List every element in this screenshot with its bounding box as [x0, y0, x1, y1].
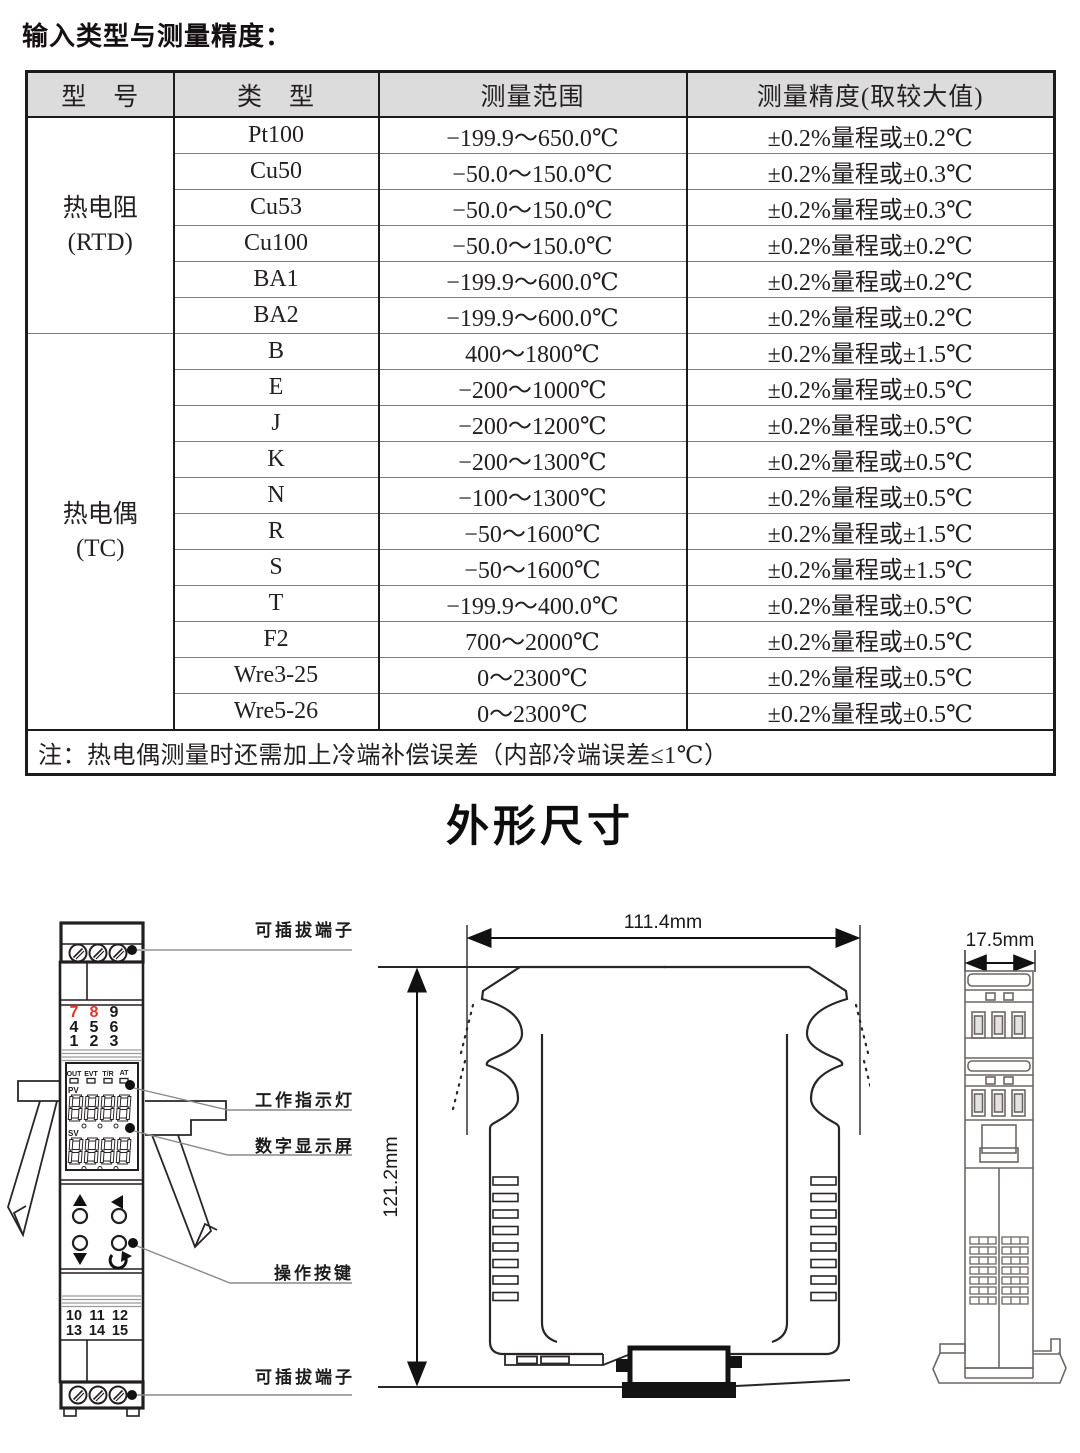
- cell-type: Cu100: [174, 226, 379, 262]
- terminal-numbers-top: 7 8 9 4 5 6 1 2 3: [70, 1004, 119, 1050]
- left-button: [112, 1209, 126, 1223]
- terminal-numbers-bottom: 10 11 12 13 14 15: [66, 1308, 128, 1339]
- cell-type: BA2: [174, 298, 379, 334]
- terminal-screw: [90, 1387, 107, 1404]
- sv-label: SV: [68, 1129, 79, 1138]
- svg-text:13: 13: [66, 1323, 82, 1339]
- rear-body: [965, 971, 1033, 1378]
- height-dimension: 121.2mm: [378, 967, 520, 1384]
- cell-range: −199.9～600.0℃: [379, 298, 687, 334]
- cell-range: 0～2300℃: [379, 658, 687, 694]
- table-row: Cu100−50.0～150.0℃±0.2%量程或±0.2℃: [27, 226, 1055, 262]
- cell-accuracy: ±0.2%量程或±0.5℃: [687, 442, 1055, 478]
- cell-range: −50.0～150.0℃: [379, 190, 687, 226]
- cell-type: R: [174, 514, 379, 550]
- terminal-screw: [90, 945, 107, 962]
- up-arrow-icon: [73, 1194, 87, 1206]
- cell-accuracy: ±0.2%量程或±0.5℃: [687, 478, 1055, 514]
- datasheet-page: 输入类型与测量精度： 型 号 类 型 测量范围 测量精度(取较大值) 热电阻 (…: [0, 0, 1080, 1453]
- width-dimension-label: 111.4mm: [624, 911, 702, 933]
- svg-text:AT: AT: [120, 1070, 130, 1077]
- profile-right-half: [664, 967, 870, 1354]
- cell-range: −50～1600℃: [379, 550, 687, 586]
- cell-range: −50.0～150.0℃: [379, 154, 687, 190]
- cell-type: F2: [174, 622, 379, 658]
- group-rtd-abbr: (RTD): [68, 229, 133, 256]
- svg-text:12: 12: [112, 1308, 128, 1324]
- cell-range: −50.0～150.0℃: [379, 226, 687, 262]
- cell-type: J: [174, 406, 379, 442]
- table-row: Wre5-260～2300℃±0.2%量程或±0.5℃: [27, 694, 1055, 731]
- cell-range: −200～1300℃: [379, 442, 687, 478]
- table-row: F2700～2000℃±0.2%量程或±0.5℃: [27, 622, 1055, 658]
- cell-accuracy: ±0.2%量程或±0.2℃: [687, 117, 1055, 154]
- cell-accuracy: ±0.2%量程或±0.5℃: [687, 586, 1055, 622]
- cell-range: −199.9～400.0℃: [379, 586, 687, 622]
- pv-display: [68, 1095, 131, 1128]
- table-header-row: 型 号 类 型 测量范围 测量精度(取较大值): [27, 72, 1055, 118]
- cell-range: −50～1600℃: [379, 514, 687, 550]
- cell-accuracy: ±0.2%量程或±0.5℃: [687, 658, 1055, 694]
- col-header-type: 类 型: [174, 72, 379, 118]
- cell-type: Cu53: [174, 190, 379, 226]
- down-arrow-icon: [73, 1253, 87, 1265]
- cell-type: N: [174, 478, 379, 514]
- leader-lines: [125, 945, 352, 1400]
- cell-accuracy: ±0.2%量程或±0.2℃: [687, 298, 1055, 334]
- baseline: [378, 1380, 850, 1387]
- table-note-row: 注：热电偶测量时还需加上冷端补偿误差（内部冷端误差≤1℃）: [27, 730, 1055, 775]
- pv-label: PV: [68, 1086, 79, 1095]
- cell-accuracy: ±0.2%量程或±0.2℃: [687, 226, 1055, 262]
- table-row: E−200～1000℃±0.2%量程或±0.5℃: [27, 370, 1055, 406]
- sv-display: [68, 1138, 131, 1171]
- cell-accuracy: ±0.2%量程或±0.5℃: [687, 406, 1055, 442]
- col-header-range: 测量范围: [379, 72, 687, 118]
- bottom-connector-strip: [505, 1354, 628, 1365]
- cell-range: 700～2000℃: [379, 622, 687, 658]
- label-operation-buttons: 操作按键: [274, 1259, 354, 1284]
- cell-type: Cu50: [174, 154, 379, 190]
- cell-type: K: [174, 442, 379, 478]
- section-title: 外形尺寸: [0, 792, 1080, 854]
- down-button: [73, 1236, 87, 1250]
- cell-type: T: [174, 586, 379, 622]
- svg-text:14: 14: [89, 1323, 105, 1339]
- terminal-screw: [110, 945, 127, 962]
- table-row: 热电阻 (RTD) Pt100 −199.9～650.0℃ ±0.2%量程或±0…: [27, 117, 1055, 154]
- cell-accuracy: ±0.2%量程或±0.5℃: [687, 370, 1055, 406]
- label-pluggable-terminal-top: 可插拔端子: [255, 916, 355, 941]
- cell-range: −199.9～650.0℃: [379, 117, 687, 154]
- cell-accuracy: ±0.2%量程或±0.3℃: [687, 190, 1055, 226]
- height-dimension-label: 121.2mm: [380, 1136, 402, 1217]
- cell-type: Pt100: [174, 117, 379, 154]
- cell-accuracy: ±0.2%量程或±1.5℃: [687, 334, 1055, 370]
- cell-accuracy: ±0.2%量程或±1.5℃: [687, 550, 1055, 586]
- table-row: J−200～1200℃±0.2%量程或±0.5℃: [27, 406, 1055, 442]
- cell-accuracy: ±0.2%量程或±0.5℃: [687, 622, 1055, 658]
- group-tc-cell: 热电偶 (TC): [27, 334, 174, 731]
- cell-range: −100～1300℃: [379, 478, 687, 514]
- table-row: T−199.9～400.0℃±0.2%量程或±0.5℃: [27, 586, 1055, 622]
- status-indicator-labels: OUT EVT T/R AT: [67, 1070, 130, 1078]
- cell-range: 400～1800℃: [379, 334, 687, 370]
- label-pluggable-terminal-bottom: 可插拔端子: [255, 1363, 355, 1388]
- cell-type: S: [174, 550, 379, 586]
- svg-text:10: 10: [66, 1308, 82, 1324]
- svg-text:OUT: OUT: [67, 1071, 83, 1078]
- terminal-screw: [70, 1387, 87, 1404]
- spec-table: 型 号 类 型 测量范围 测量精度(取较大值) 热电阻 (RTD) Pt100 …: [25, 70, 1056, 776]
- page-title: 输入类型与测量精度：: [22, 16, 292, 53]
- cell-range: −200～1200℃: [379, 406, 687, 442]
- depth-dimension: 17.5mm: [965, 930, 1035, 972]
- table-note: 注：热电偶测量时还需加上冷端补偿误差（内部冷端误差≤1℃）: [27, 730, 1055, 775]
- svg-text:11: 11: [89, 1308, 104, 1324]
- table-row: Cu53−50.0～150.0℃±0.2%量程或±0.3℃: [27, 190, 1055, 226]
- up-button: [73, 1209, 87, 1223]
- cell-range: 0～2300℃: [379, 694, 687, 731]
- table-row: Wre3-250～2300℃±0.2%量程或±0.5℃: [27, 658, 1055, 694]
- cell-range: −199.9～600.0℃: [379, 262, 687, 298]
- operation-buttons: [73, 1194, 132, 1268]
- group-tc-name: 热电偶: [63, 501, 138, 528]
- width-dimension: 111.4mm: [467, 911, 860, 1135]
- profile-left-half: [453, 967, 665, 1354]
- label-digital-display: 数字显示屏: [255, 1132, 355, 1157]
- group-tc-abbr: (TC): [76, 535, 125, 562]
- table-row: N−100～1300℃±0.2%量程或±0.5℃: [27, 478, 1055, 514]
- svg-text:1: 1: [70, 1033, 79, 1050]
- din-clip: [616, 1348, 742, 1398]
- col-header-model: 型 号: [27, 72, 174, 118]
- depth-dimension-label: 17.5mm: [966, 930, 1035, 951]
- cell-type: B: [174, 334, 379, 370]
- cell-accuracy: ±0.2%量程或±0.5℃: [687, 694, 1055, 731]
- table-row: K−200～1300℃±0.2%量程或±0.5℃: [27, 442, 1055, 478]
- side-view-drawing: 111.4mm 121.2mm: [370, 895, 870, 1453]
- cell-type: BA1: [174, 262, 379, 298]
- terminal-screw: [110, 1387, 127, 1404]
- cell-type: Wre3-25: [174, 658, 379, 694]
- table-row: 热电偶 (TC) B 400～1800℃ ±0.2%量程或±1.5℃: [27, 334, 1055, 370]
- table-row: R−50～1600℃±0.2%量程或±1.5℃: [27, 514, 1055, 550]
- table-row: Cu50−50.0～150.0℃±0.2%量程或±0.3℃: [27, 154, 1055, 190]
- group-rtd-cell: 热电阻 (RTD): [27, 117, 174, 334]
- cell-accuracy: ±0.2%量程或±1.5℃: [687, 514, 1055, 550]
- svg-text:T/R: T/R: [102, 1071, 113, 1078]
- svg-text:EVT: EVT: [84, 1071, 98, 1078]
- svg-text:15: 15: [112, 1323, 128, 1339]
- cell-type: Wre5-26: [174, 694, 379, 731]
- cell-range: −200～1000℃: [379, 370, 687, 406]
- rear-view-drawing: 17.5mm: [920, 920, 1080, 1453]
- cell-accuracy: ±0.2%量程或±0.3℃: [687, 154, 1055, 190]
- svg-text:2: 2: [90, 1033, 99, 1050]
- cell-accuracy: ±0.2%量程或±0.2℃: [687, 262, 1055, 298]
- left-arrow-icon: [111, 1195, 123, 1209]
- svg-text:3: 3: [110, 1033, 119, 1050]
- table-row: S−50～1600℃±0.2%量程或±1.5℃: [27, 550, 1055, 586]
- loop-button: [112, 1236, 126, 1250]
- table-row: BA1−199.9～600.0℃±0.2%量程或±0.2℃: [27, 262, 1055, 298]
- cell-type: E: [174, 370, 379, 406]
- label-work-indicator: 工作指示灯: [255, 1086, 355, 1111]
- table-row: BA2−199.9～600.0℃±0.2%量程或±0.2℃: [27, 298, 1055, 334]
- group-rtd-name: 热电阻: [63, 195, 138, 222]
- col-header-accuracy: 测量精度(取较大值): [687, 72, 1055, 118]
- terminal-screw: [70, 945, 87, 962]
